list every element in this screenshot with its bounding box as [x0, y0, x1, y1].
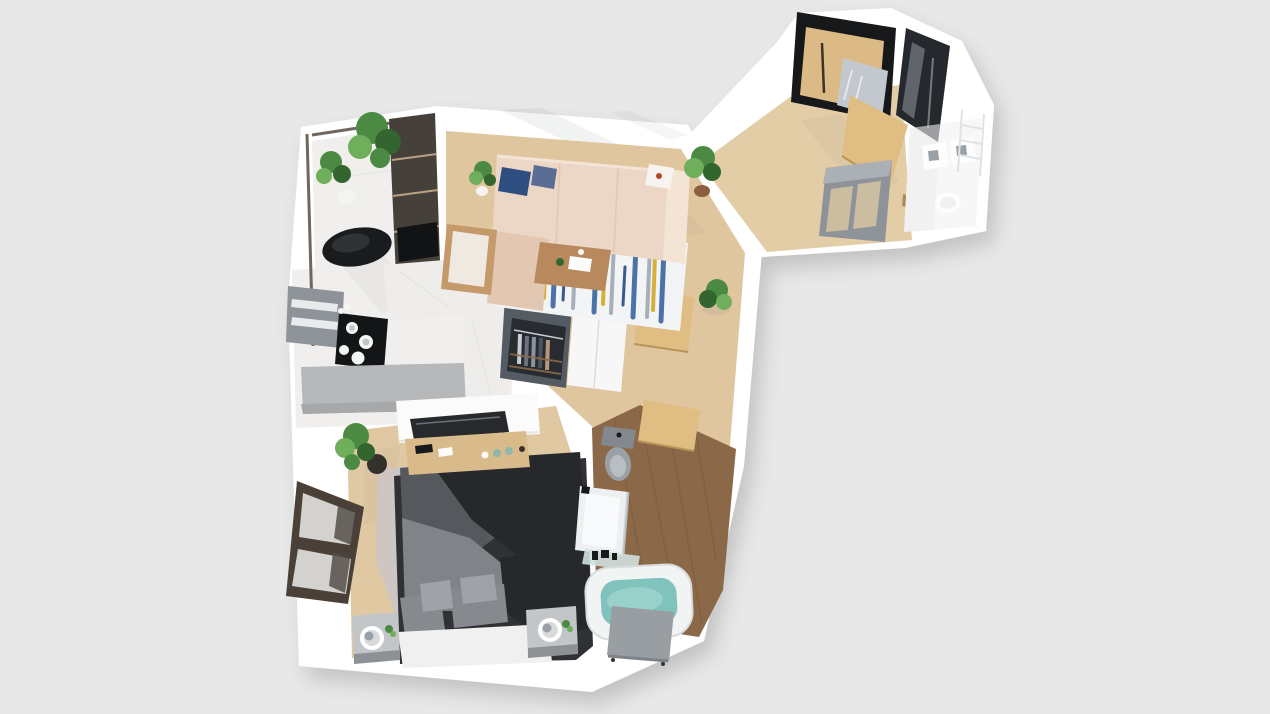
plant-pot	[338, 190, 356, 204]
toiletry-bottle	[592, 551, 598, 560]
shower-caddy	[581, 486, 590, 494]
shelf-tv	[397, 222, 439, 262]
plant-foliage	[333, 165, 351, 183]
toilet-tank	[601, 426, 636, 449]
dresser-jar	[505, 447, 513, 455]
plant-foliage	[316, 168, 332, 184]
nightstand-plant	[567, 626, 573, 632]
throw-pillow-navy-light	[531, 165, 557, 189]
floorplan-render	[0, 0, 1270, 714]
floorplan-viewport	[0, 0, 1270, 714]
plant-foliage	[469, 171, 483, 185]
pillow-accent-dot	[656, 173, 662, 179]
nightstand-plant	[390, 631, 396, 637]
tub-front-panel	[607, 606, 674, 661]
plant-foliage	[699, 290, 717, 308]
table-cup	[578, 249, 584, 255]
plant-foliage	[348, 135, 372, 159]
dresser-dish	[482, 452, 489, 459]
panel-foot	[661, 662, 665, 666]
panel-foot	[611, 658, 615, 662]
flush-button	[617, 433, 622, 438]
laundry-wall-shade	[904, 124, 940, 232]
clothing-item	[526, 336, 527, 366]
tub-apron	[607, 606, 674, 666]
plant-foliage	[370, 148, 390, 168]
plant-foliage	[703, 163, 721, 181]
dresser-jar	[493, 449, 501, 457]
plant-foliage	[484, 174, 496, 186]
clothing-item	[533, 337, 534, 367]
pot-inner	[363, 339, 370, 346]
unit-inset	[956, 145, 967, 156]
shower-tray-inner	[582, 493, 620, 549]
nightstand-left	[352, 612, 400, 664]
plant-pot	[694, 185, 710, 197]
throw-pillow-navy	[498, 167, 531, 196]
armchair-cushion	[448, 231, 489, 287]
bed-pillow-small	[460, 574, 497, 604]
pot	[352, 352, 365, 365]
rug-stripe	[653, 256, 655, 310]
lamp-ring	[365, 632, 374, 641]
plant-pot	[476, 186, 488, 196]
toiletry-bottle	[612, 553, 617, 560]
plant-foliage	[357, 443, 375, 461]
clothing-item	[547, 340, 548, 370]
clothing-item	[540, 338, 541, 368]
lamp-ring	[543, 624, 552, 633]
pot-inner	[349, 325, 355, 331]
dresser-knob	[519, 446, 525, 452]
spice-jar	[338, 308, 344, 314]
plant-foliage	[716, 294, 732, 310]
unit-inset	[928, 150, 939, 161]
shower	[575, 486, 628, 556]
kitchen-wall-cabinet	[286, 286, 344, 348]
table-plant	[556, 258, 564, 266]
nightstand-right	[526, 606, 578, 658]
toiletry-bottle	[601, 550, 609, 558]
spice-jar	[344, 304, 350, 310]
clothing-item	[519, 334, 520, 364]
plant-foliage	[684, 158, 704, 178]
plant-foliage	[344, 454, 360, 470]
rug-stripe	[623, 267, 625, 305]
pot	[339, 345, 349, 355]
bed-pillow-small	[420, 580, 453, 612]
